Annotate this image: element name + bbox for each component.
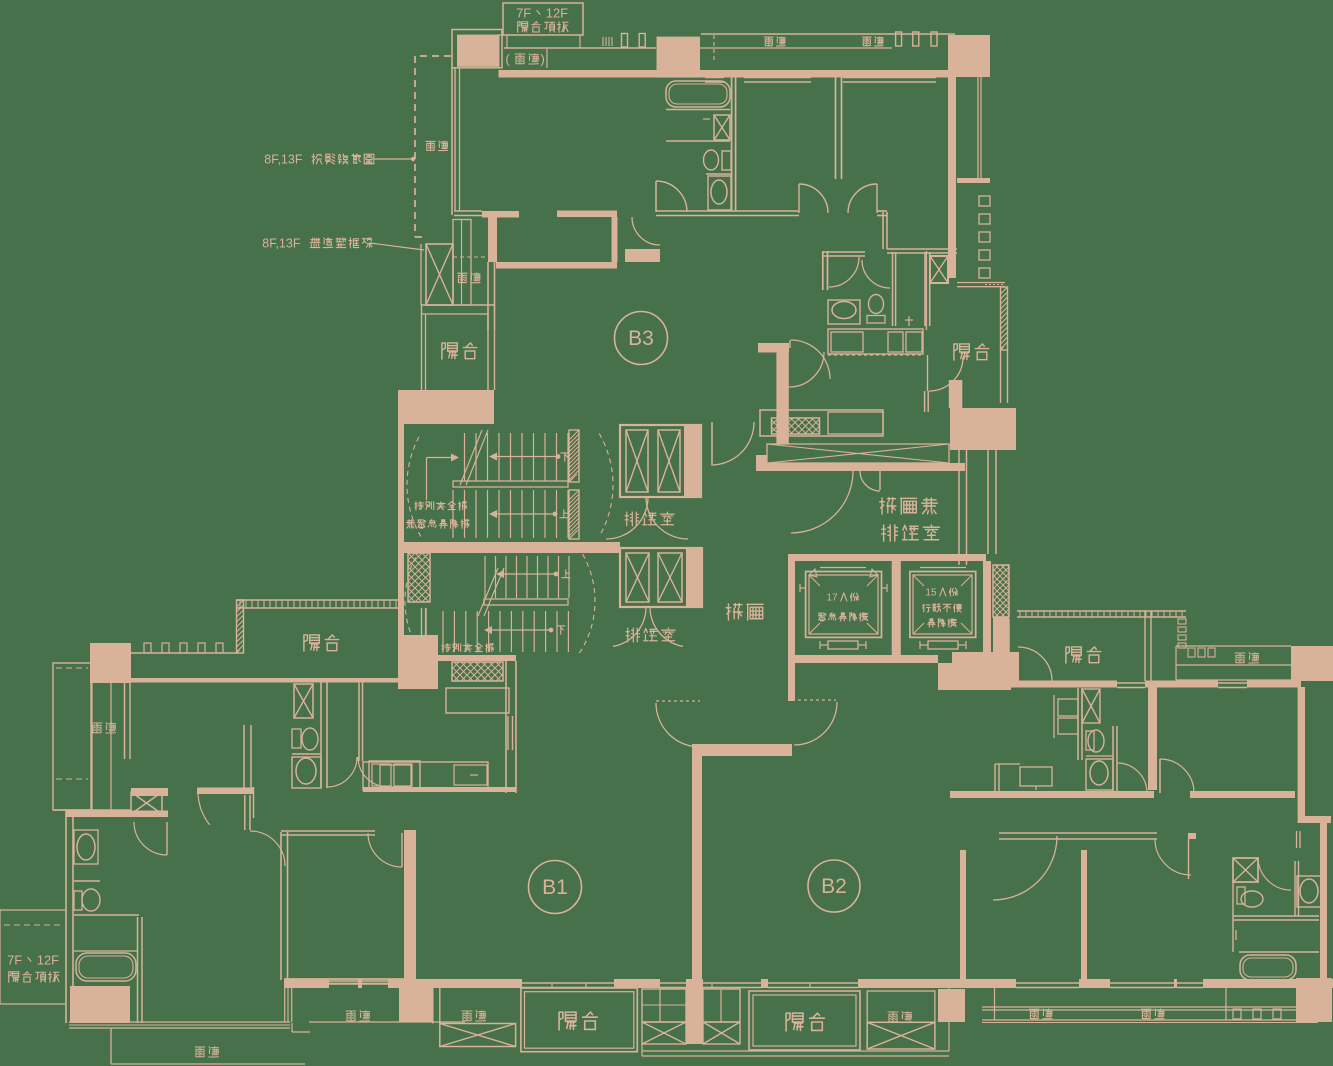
svg-text:12F: 12F	[546, 6, 568, 21]
svg-text:B3: B3	[628, 327, 654, 350]
svg-text:): )	[541, 52, 545, 67]
svg-text:17: 17	[826, 593, 838, 604]
svg-text:15: 15	[925, 588, 937, 599]
svg-text:7F: 7F	[516, 6, 531, 21]
svg-text:8F,13F: 8F,13F	[262, 237, 301, 251]
svg-text:(: (	[505, 52, 510, 67]
svg-text:12F: 12F	[37, 953, 59, 968]
svg-text:7F: 7F	[7, 953, 22, 968]
svg-text:B1: B1	[542, 876, 568, 899]
svg-text:B2: B2	[821, 875, 847, 898]
svg-text:8F,13F: 8F,13F	[264, 153, 303, 167]
